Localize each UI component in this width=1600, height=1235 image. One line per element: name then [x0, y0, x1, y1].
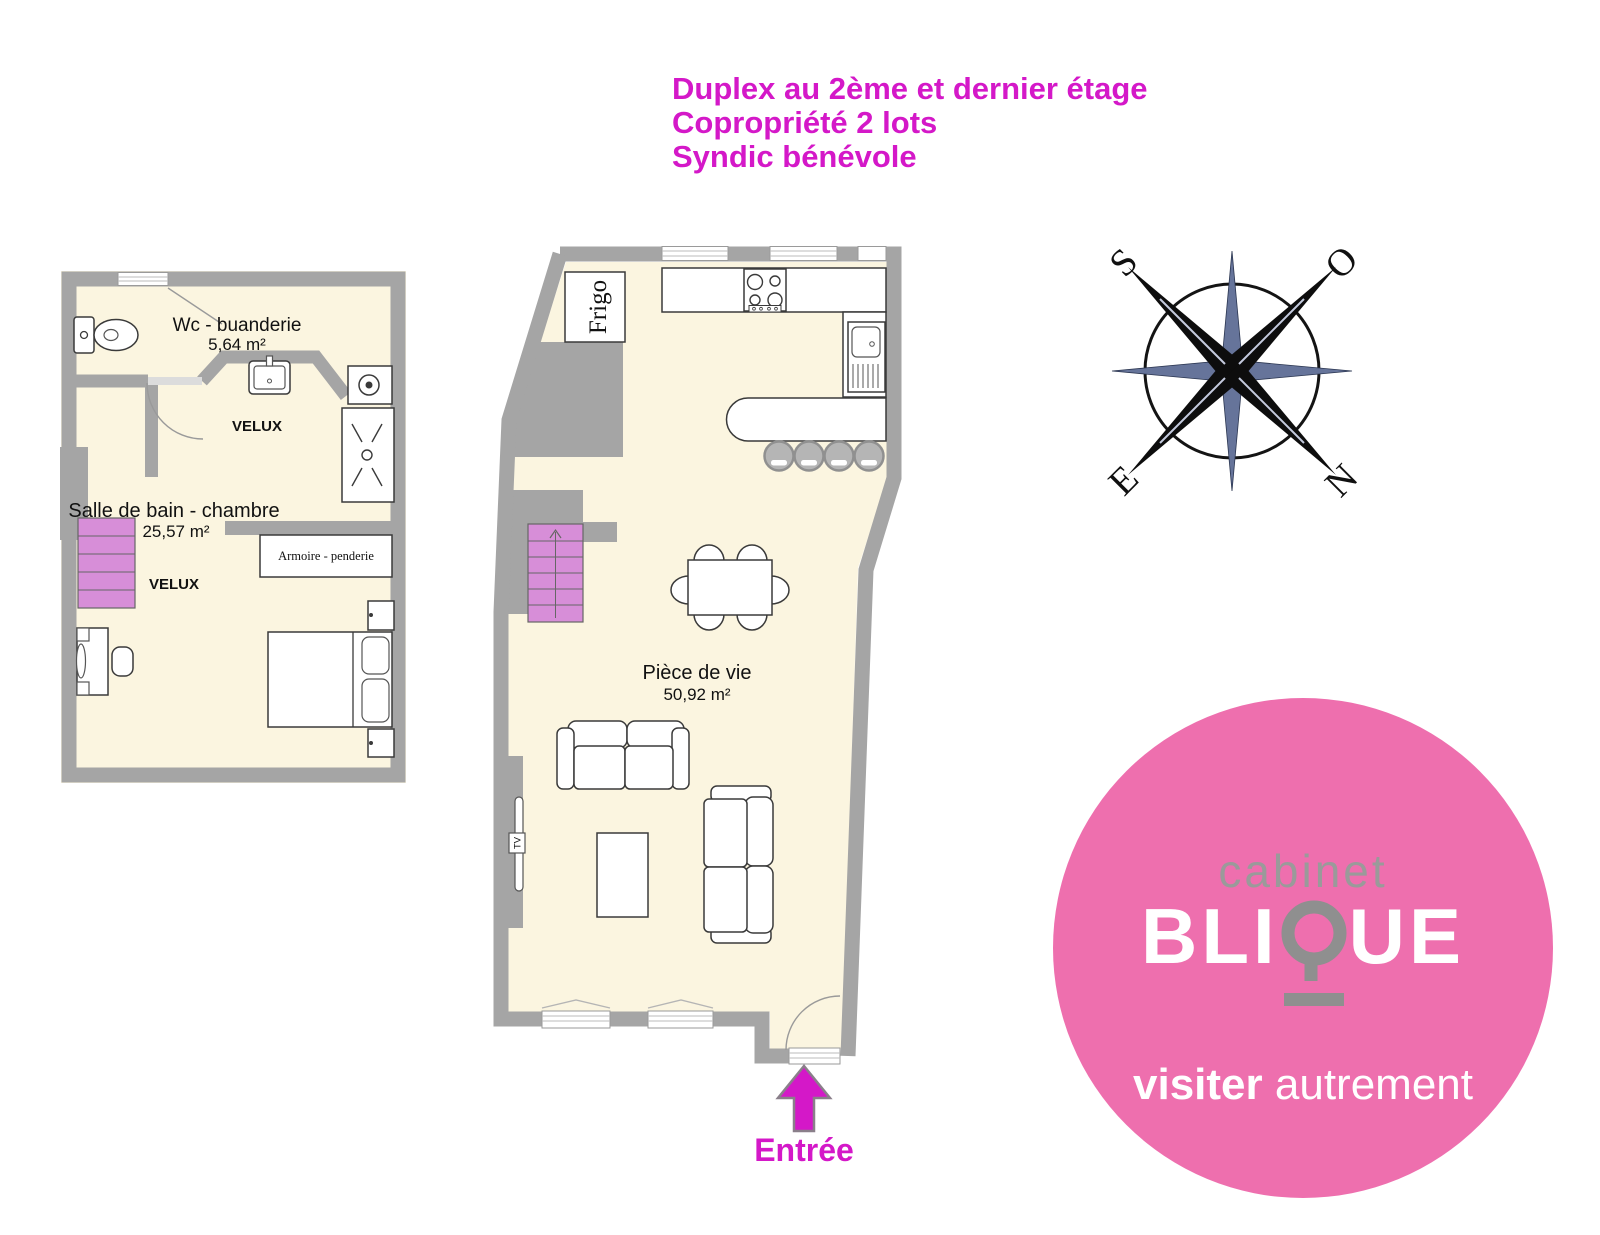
tv-label: TV — [513, 836, 524, 849]
room1-name: Wc - buanderie — [173, 315, 302, 336]
living-room-name: Pièce de vie — [643, 662, 752, 684]
compass-rose: S O E N — [1079, 218, 1385, 524]
stove-icon — [744, 269, 786, 312]
velux-upper-label: VELUX — [232, 418, 282, 435]
velux-lower-label: VELUX — [149, 576, 199, 593]
logo-cabinet-text: cabinet — [1053, 844, 1553, 898]
shower-icon — [342, 408, 394, 502]
stair-stub-wall — [583, 522, 617, 542]
floorplan-main-level: Frigo — [501, 247, 894, 1065]
logo-q-icon — [1281, 897, 1347, 1015]
toilet-icon — [74, 317, 138, 353]
room2-area: 25,57 m² — [142, 522, 209, 541]
window-icon — [118, 273, 168, 286]
logo-tagline: visiter autrement — [1053, 1060, 1553, 1110]
entrance-marker: Entrée — [754, 1066, 854, 1168]
room1-area: 5,64 m² — [208, 335, 266, 354]
wardrobe-icon: Armoire - penderie — [260, 535, 392, 577]
coffee-table-icon — [597, 833, 648, 917]
logo-name-suffix: UE — [1349, 897, 1465, 975]
logo-tagline-bold: visiter — [1133, 1060, 1263, 1109]
kitchen-sink-icon — [848, 322, 885, 392]
entrance-label: Entrée — [754, 1132, 854, 1168]
agency-logo: cabinet BLI UE visiter autrement — [1053, 698, 1553, 1198]
wardrobe-label: Armoire - penderie — [278, 549, 374, 563]
room2-name: Salle de bain - chambre — [68, 500, 279, 522]
stairs-main-icon — [528, 524, 583, 622]
washing-machine-icon — [348, 366, 392, 404]
living-room-area: 50,92 m² — [663, 685, 730, 704]
stair-head-wall — [502, 490, 583, 525]
floorplan-page: { "title": { "line1": "Duplex au 2ème et… — [0, 0, 1600, 1235]
bathroom-sink-icon — [249, 356, 290, 394]
bar-island — [727, 398, 887, 441]
fridge-label: Frigo — [585, 280, 612, 334]
entrance-arrow-icon — [778, 1066, 830, 1131]
logo-brand-name: BLI UE — [1053, 897, 1553, 1015]
bed-icon — [268, 632, 392, 727]
chair-icon — [112, 647, 133, 676]
wardrobe-wall — [225, 521, 396, 535]
floorplan-upper-level: Armoire - penderie — [60, 271, 406, 783]
sofa-icon — [704, 786, 773, 943]
logo-name-prefix: BLI — [1141, 897, 1279, 975]
sofa-icon — [557, 721, 689, 789]
door-threshold — [148, 377, 202, 385]
stairs-upper-icon — [78, 518, 135, 608]
fridge-icon: Frigo — [565, 272, 625, 342]
logo-tagline-light: autrement — [1275, 1060, 1473, 1109]
